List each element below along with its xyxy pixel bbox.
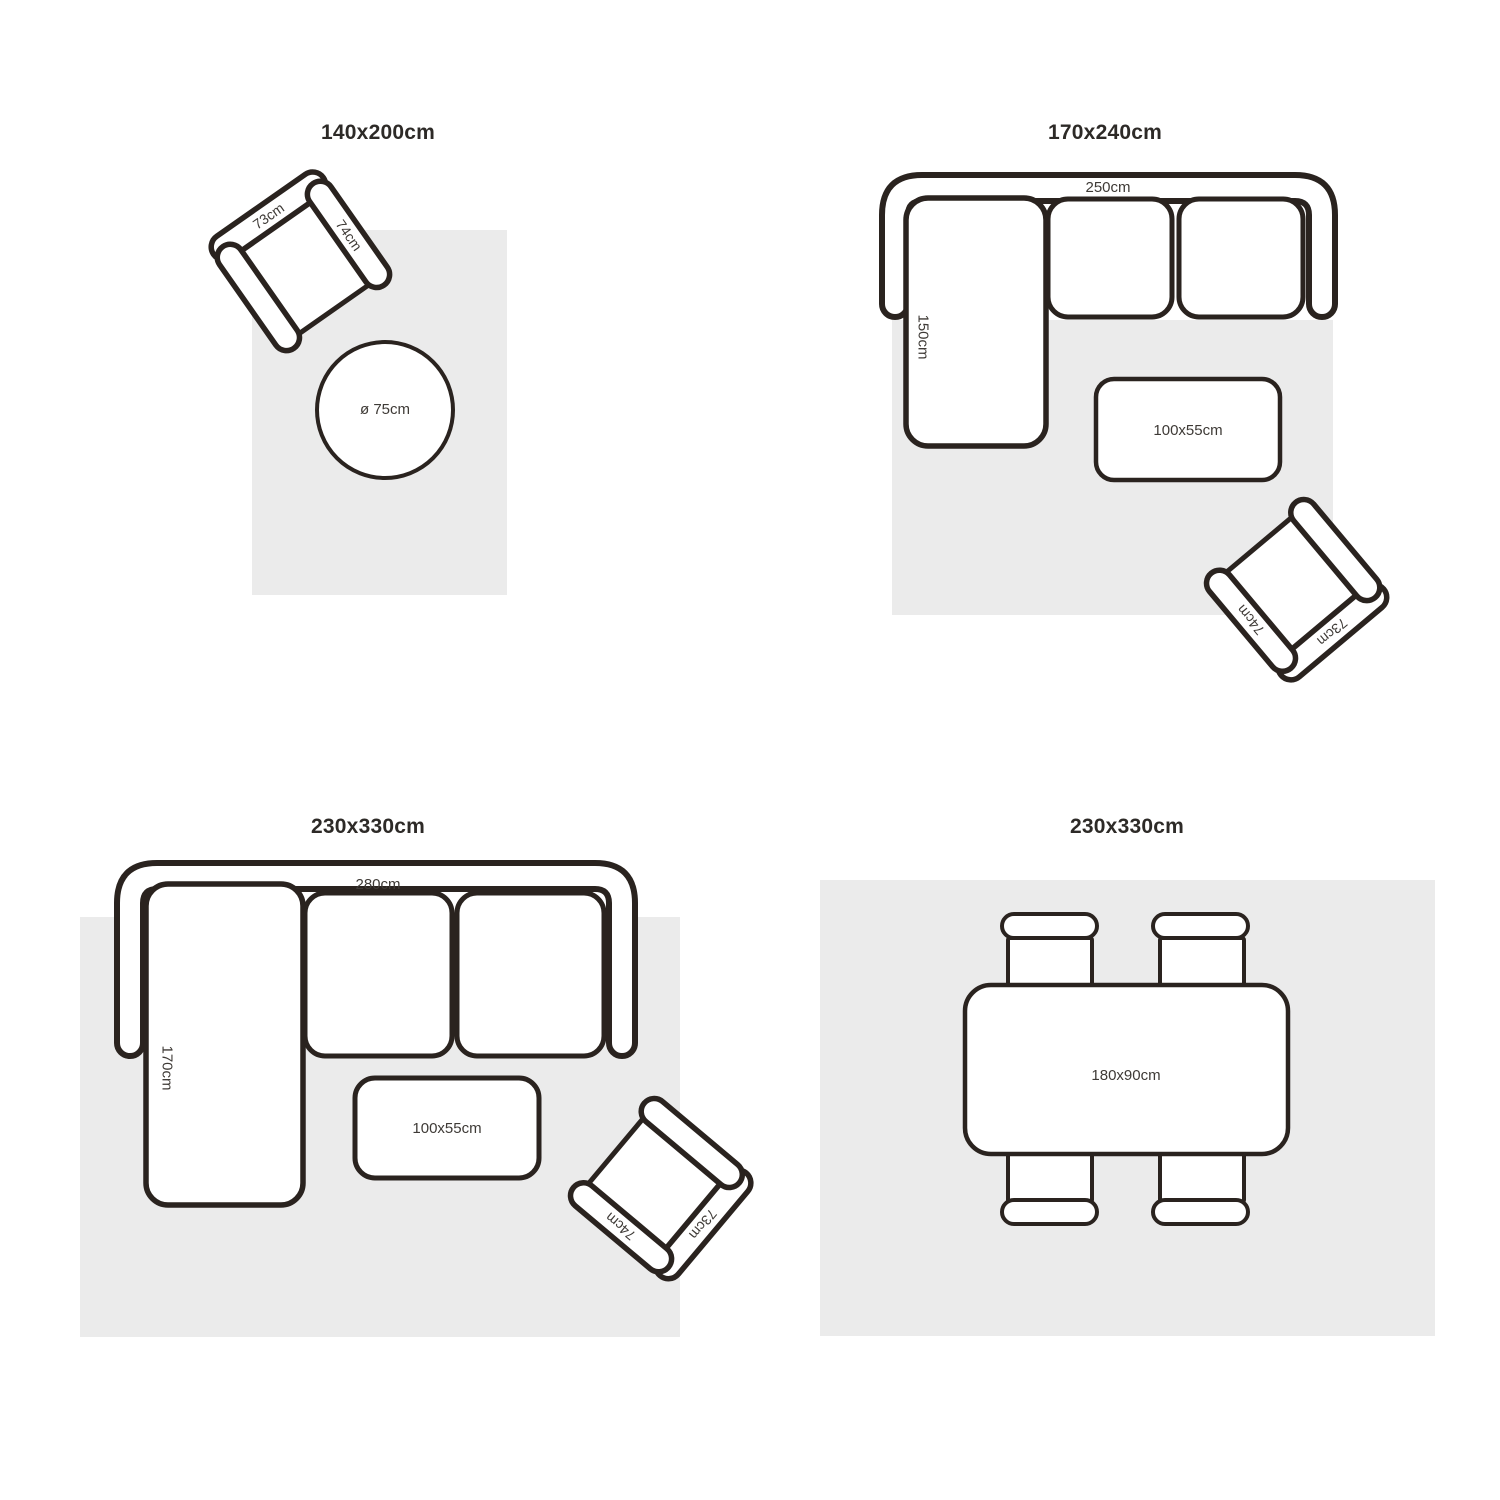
dining-table-label: 180x90cm bbox=[1091, 1067, 1160, 1084]
sofa-cushion bbox=[1048, 199, 1172, 317]
dining-chair-back bbox=[1002, 914, 1097, 938]
dining-chair bbox=[1002, 1154, 1097, 1224]
dining-chair-seat bbox=[1008, 1154, 1092, 1202]
coffee-table-label: 100x55cm bbox=[1153, 422, 1222, 439]
dining-chair-back bbox=[1153, 1200, 1248, 1224]
dining-chair-back bbox=[1153, 914, 1248, 938]
dining-chair bbox=[1153, 1154, 1248, 1224]
dining-chair-seat bbox=[1160, 938, 1244, 986]
sofa-cushion bbox=[457, 893, 604, 1056]
dining-chair bbox=[1002, 914, 1097, 986]
dining-chair-seat bbox=[1008, 938, 1092, 986]
dining-chair bbox=[1153, 914, 1248, 986]
sofa-depth-label: 170cm bbox=[159, 1045, 176, 1090]
panel4-230x330-dining: 180x90cm bbox=[820, 880, 1435, 1336]
rug-diagrams-canvas: 73cm 74cm ø 75cm 250cm 150cm 100x55cm bbox=[0, 0, 1500, 1500]
panel3-230x330-sofa: 280cm 170cm 100x55cm 73cm 74cm bbox=[80, 863, 757, 1337]
dining-chair-seat bbox=[1160, 1154, 1244, 1202]
sofa-width-label: 250cm bbox=[1085, 179, 1130, 196]
panel2-170x240: 250cm 150cm 100x55cm 73cm 74cm bbox=[882, 175, 1393, 686]
rug-size-guide: 140x200cm 170x240cm 230x330cm 230x330cm … bbox=[0, 0, 1500, 1500]
sofa-depth-label: 150cm bbox=[915, 314, 932, 359]
panel1-140x200: 73cm 74cm ø 75cm bbox=[205, 166, 507, 595]
coffee-table-label: 100x55cm bbox=[412, 1120, 481, 1137]
sofa-cushion bbox=[1179, 199, 1303, 317]
sofa-cushion bbox=[305, 893, 452, 1056]
sofa-width-label: 280cm bbox=[355, 876, 400, 893]
dining-chair-back bbox=[1002, 1200, 1097, 1224]
round-table-label: ø 75cm bbox=[360, 401, 410, 418]
